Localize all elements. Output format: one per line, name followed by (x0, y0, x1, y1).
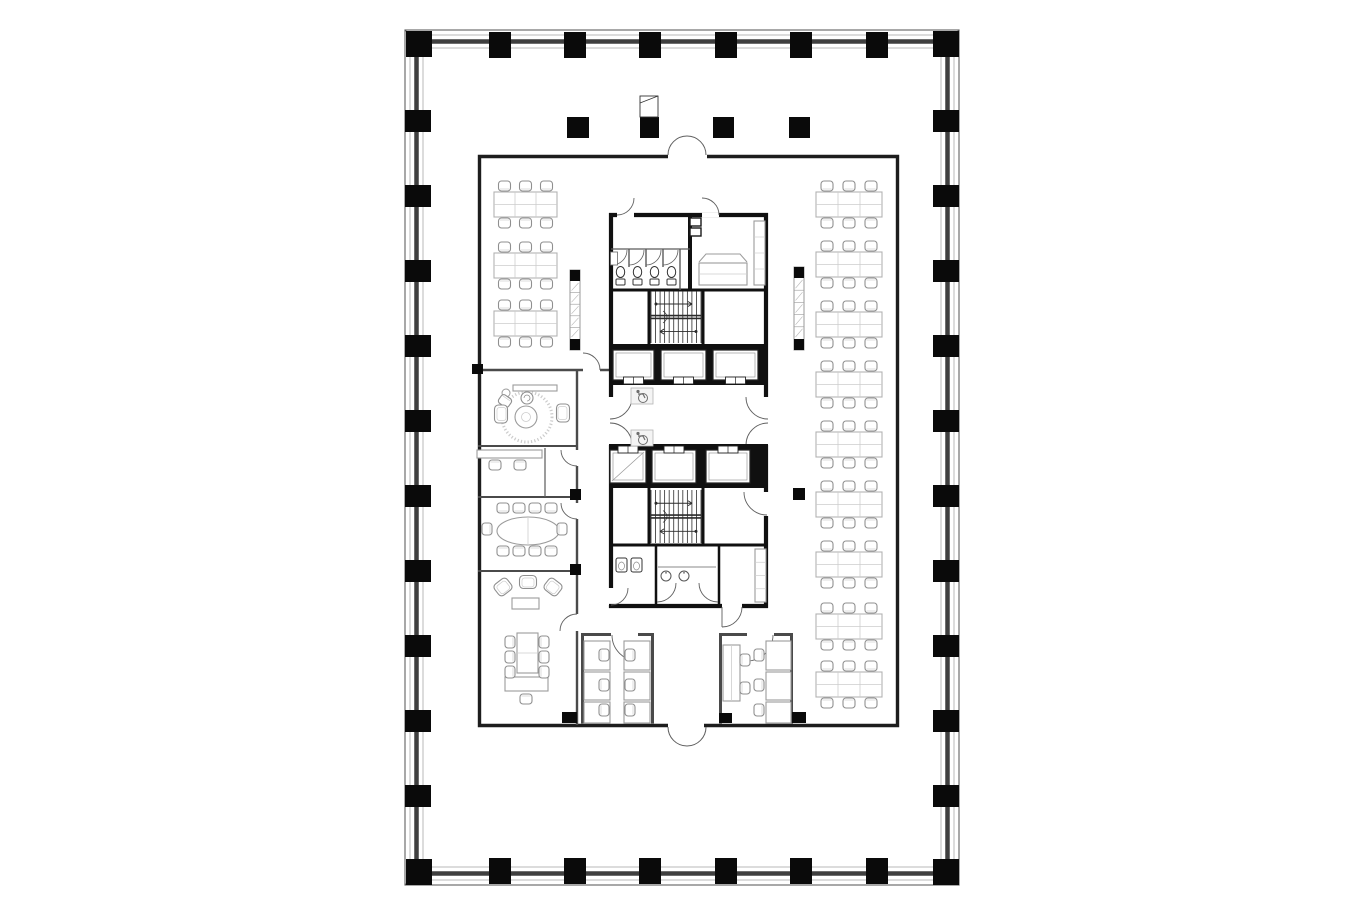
elevator-north-car (613, 350, 654, 384)
chair-seat (865, 661, 877, 671)
chair-seat (865, 338, 877, 348)
chair-seat (821, 698, 833, 708)
elevator-south-car (652, 446, 696, 483)
table (505, 677, 548, 691)
chair (865, 458, 877, 468)
structural-block (719, 713, 732, 723)
shelf-cap (794, 267, 804, 278)
chair (821, 661, 833, 671)
chair (599, 649, 609, 661)
accessible-box (631, 430, 653, 446)
chair-seat (843, 458, 855, 468)
chair-seat (541, 218, 553, 228)
stair-south-east-door (744, 492, 767, 515)
chair-seat (865, 541, 877, 551)
accessible-box (631, 388, 653, 404)
chair (520, 300, 532, 310)
chair-seat (529, 503, 541, 513)
chair (539, 651, 549, 663)
table-top (766, 702, 791, 723)
toilet (616, 267, 625, 286)
toilet (633, 267, 642, 286)
desk-cluster (816, 603, 882, 650)
chair-seat (865, 578, 877, 588)
column (866, 32, 888, 58)
column (405, 260, 431, 282)
chair (520, 181, 532, 191)
chair-seat (865, 278, 877, 288)
chair-seat (625, 704, 635, 716)
desk-cluster (816, 361, 882, 408)
table (513, 385, 557, 391)
column (933, 485, 959, 507)
column (564, 858, 586, 884)
sink (679, 571, 689, 581)
toilet-tank (633, 279, 642, 285)
toilet-tank (616, 279, 625, 285)
table-top (477, 450, 542, 458)
armchair-body (492, 577, 513, 598)
chair-seat (505, 636, 515, 648)
restroom-south-west-door (611, 588, 628, 605)
armchair (557, 404, 570, 422)
chair-seat (865, 398, 877, 408)
chair-seat (489, 460, 501, 470)
electrical-panel (690, 218, 701, 226)
chair-seat (520, 337, 532, 347)
chair-seat (865, 698, 877, 708)
chair-seat (520, 694, 532, 704)
chair (520, 694, 532, 704)
desk-cluster (494, 300, 557, 347)
chair-seat (625, 679, 635, 691)
toilet-stall-doors (612, 250, 678, 265)
column (866, 858, 888, 884)
chair-seat (843, 338, 855, 348)
wheelchair-icon-head (636, 432, 639, 435)
stair-enclosure-walls (649, 290, 703, 545)
chair-seat (505, 666, 515, 678)
column (489, 858, 511, 884)
executive-door (560, 614, 577, 631)
team-room-door (561, 450, 577, 466)
table (766, 641, 791, 670)
chair (821, 361, 833, 371)
structural-block (793, 488, 805, 500)
chair (514, 460, 526, 470)
table (766, 672, 791, 700)
desk-cluster (816, 421, 882, 468)
chair (520, 218, 532, 228)
floor-plan (0, 0, 1360, 900)
electrical-panel (690, 228, 701, 236)
chair-seat (740, 654, 750, 666)
toilet-tank (650, 279, 659, 285)
chair (499, 337, 511, 347)
table-top (766, 672, 791, 700)
table (755, 549, 766, 602)
chair-seat (843, 481, 855, 491)
chair-seat (599, 649, 609, 661)
conference-room (497, 517, 559, 545)
chair-seat (754, 679, 764, 691)
column (405, 710, 431, 732)
chair-seat (843, 218, 855, 228)
chair-seat (865, 301, 877, 311)
core-cross-walls (609, 290, 768, 545)
column (715, 858, 737, 884)
elevator-car (706, 450, 750, 483)
stair-arrow-origin (655, 502, 658, 505)
chair (740, 654, 750, 666)
chair (499, 279, 511, 289)
chair-seat (865, 241, 877, 251)
chair-seat (541, 300, 553, 310)
chair (625, 704, 635, 716)
chair (865, 181, 877, 191)
chair (499, 181, 511, 191)
office-chair (521, 392, 533, 404)
chair (821, 241, 833, 251)
chair (754, 679, 764, 691)
table-top (513, 385, 557, 391)
table (699, 263, 747, 285)
chair-seat (821, 661, 833, 671)
chair-seat (821, 241, 833, 251)
chair (865, 661, 877, 671)
stair-arrow-origin (695, 330, 698, 333)
table (512, 598, 539, 609)
chair (865, 361, 877, 371)
desk-cluster (816, 181, 882, 228)
chair (843, 458, 855, 468)
chair-seat (754, 649, 764, 661)
chair-seat (539, 666, 549, 678)
chair (513, 503, 525, 513)
chair-seat (513, 546, 525, 556)
chair-seat (843, 603, 855, 613)
chair-seat (499, 181, 511, 191)
sink (661, 571, 671, 581)
chair-seat (740, 682, 750, 694)
urinal (631, 558, 642, 572)
chair-seat (529, 546, 541, 556)
chair (865, 518, 877, 528)
chair (499, 300, 511, 310)
elevator-car (613, 350, 654, 380)
elevator-car (652, 450, 696, 483)
chair (505, 666, 515, 678)
chair-seat (625, 649, 635, 661)
chair (529, 503, 541, 513)
chair (754, 649, 764, 661)
chair (843, 421, 855, 431)
chair-seat (821, 578, 833, 588)
elevator-car (713, 350, 758, 380)
table-top (505, 677, 548, 691)
column (790, 32, 812, 58)
chair (865, 603, 877, 613)
chair-seat (520, 242, 532, 252)
chair-seat (821, 218, 833, 228)
chair-seat (843, 361, 855, 371)
chair (821, 541, 833, 551)
chair-seat (821, 361, 833, 371)
chair (541, 279, 553, 289)
column (933, 110, 959, 132)
shelf-cap (570, 270, 580, 281)
chair (599, 704, 609, 716)
toilet-tank (667, 279, 676, 285)
chair (865, 218, 877, 228)
chair (865, 278, 877, 288)
stairs (651, 291, 701, 543)
chair-seat (821, 398, 833, 408)
chair (821, 301, 833, 311)
chair-seat (499, 300, 511, 310)
chair (843, 361, 855, 371)
table (723, 645, 740, 701)
interior-column (789, 117, 810, 138)
chair (557, 523, 567, 535)
chair-seat (843, 518, 855, 528)
shelf-cap (794, 339, 804, 350)
chair-seat (865, 481, 877, 491)
chair-seat (843, 421, 855, 431)
chair (625, 679, 635, 691)
stair-arrow-origin (695, 530, 698, 533)
chair-seat (843, 541, 855, 551)
chair-seat (843, 181, 855, 191)
column (489, 32, 511, 58)
chair-seat (865, 640, 877, 650)
column (405, 410, 431, 432)
column (405, 785, 431, 807)
north-entrance-double-door (668, 136, 706, 155)
chair-seat (482, 523, 492, 535)
chair (843, 578, 855, 588)
chair (843, 541, 855, 551)
stair-flight (651, 490, 701, 543)
chair-seat (513, 503, 525, 513)
chair-seat (821, 458, 833, 468)
chair-seat (499, 337, 511, 347)
chair-seat (865, 458, 877, 468)
chair (539, 666, 549, 678)
chair-seat (843, 398, 855, 408)
chair-seat (520, 181, 532, 191)
chair-seat (821, 338, 833, 348)
column (715, 32, 737, 58)
column (405, 635, 431, 657)
stair-flight (651, 291, 701, 343)
chair (865, 640, 877, 650)
chair (497, 503, 509, 513)
wc-stall-doors-south (657, 583, 718, 602)
column (639, 858, 661, 884)
chair (865, 481, 877, 491)
chair-seat (821, 421, 833, 431)
chair (865, 338, 877, 348)
toilet-bowl (633, 267, 641, 278)
column (933, 635, 959, 657)
chair (865, 541, 877, 551)
chair-seat (821, 278, 833, 288)
chair (843, 603, 855, 613)
desk-cluster (494, 181, 557, 228)
chair-seat (843, 278, 855, 288)
chair-seat (499, 218, 511, 228)
shelf-cap (570, 339, 580, 350)
stair-arrow-origin (655, 303, 658, 306)
chair-seat (499, 242, 511, 252)
table (766, 702, 791, 723)
chair-seat (541, 337, 553, 347)
toilet-bowl (650, 267, 658, 278)
column (405, 485, 431, 507)
round-table (515, 406, 537, 428)
chair-seat (865, 421, 877, 431)
chair-seat (539, 636, 549, 648)
chair (865, 421, 877, 431)
desk-cluster (816, 661, 882, 708)
accessible-markers (631, 388, 653, 446)
wheelchair-icon-head (636, 390, 639, 393)
column (933, 335, 959, 357)
chair-seat (497, 546, 509, 556)
sofa-back (699, 254, 747, 262)
column (639, 32, 661, 58)
chair (821, 603, 833, 613)
chair (545, 503, 557, 513)
urinal (616, 558, 627, 572)
table (477, 450, 542, 458)
chair-seat (520, 218, 532, 228)
chair (843, 338, 855, 348)
column (933, 710, 959, 732)
corner-column (406, 859, 432, 885)
structural-block (792, 712, 806, 723)
lounge (502, 389, 552, 442)
desk-cluster (816, 541, 882, 588)
structural-block (472, 364, 483, 374)
floor-plan-page (0, 0, 1360, 900)
chair-seat (545, 503, 557, 513)
elevator-car (661, 350, 706, 380)
chair (843, 398, 855, 408)
chair-seat (843, 661, 855, 671)
elevator-south-car (610, 446, 646, 483)
chair (865, 578, 877, 588)
shelving-strip (570, 270, 580, 350)
chair (865, 398, 877, 408)
column (790, 858, 812, 884)
cleaning-closet (611, 252, 618, 265)
interior-columns (567, 96, 810, 138)
chair (821, 458, 833, 468)
chair (821, 698, 833, 708)
armchair-body (542, 577, 563, 598)
chair (843, 640, 855, 650)
column (933, 260, 959, 282)
amenity-room-door (702, 198, 719, 215)
shelving-strip (794, 267, 804, 350)
conference-door (561, 503, 577, 519)
chair (821, 421, 833, 431)
chair (541, 218, 553, 228)
desk-cluster (816, 481, 882, 528)
chair (529, 546, 541, 556)
column (933, 785, 959, 807)
interior-column (567, 117, 589, 138)
armchair (542, 577, 563, 598)
column (405, 560, 431, 582)
corner-column (933, 859, 959, 885)
chair-seat (865, 361, 877, 371)
chair-seat (821, 518, 833, 528)
chair (513, 546, 525, 556)
chair-seat (865, 218, 877, 228)
chair-seat (821, 301, 833, 311)
armchair (492, 577, 513, 598)
janitor-room-door (722, 607, 742, 627)
chair-seat (539, 651, 549, 663)
corner-column (406, 31, 432, 57)
chair (599, 679, 609, 691)
column (405, 335, 431, 357)
desk-cluster (816, 241, 882, 288)
lobby-east-doors (746, 397, 768, 445)
toilet (667, 267, 676, 286)
chair-seat (520, 279, 532, 289)
column (933, 410, 959, 432)
chair (843, 278, 855, 288)
chair (843, 518, 855, 528)
elevator-south-car (706, 446, 750, 483)
chair-seat (843, 241, 855, 251)
chair (740, 682, 750, 694)
desk-cluster (494, 242, 557, 289)
accessible-marker (631, 430, 653, 446)
column (933, 185, 959, 207)
chair-seat (520, 300, 532, 310)
chair (821, 640, 833, 650)
chair (497, 546, 509, 556)
chair-seat (541, 242, 553, 252)
chair-seat (545, 546, 557, 556)
chair (482, 523, 492, 535)
chair (505, 651, 515, 663)
chair-seat (843, 578, 855, 588)
chair (865, 241, 877, 251)
sink-faucet (683, 572, 685, 574)
table-top (512, 598, 539, 609)
chair-seat (557, 523, 567, 535)
chair-seat (843, 698, 855, 708)
chair-seat (541, 181, 553, 191)
chair-seat (821, 481, 833, 491)
table (517, 633, 538, 673)
chair-seat (514, 460, 526, 470)
chair (754, 704, 764, 716)
desk-cluster (816, 301, 882, 348)
chair (821, 398, 833, 408)
chair (843, 661, 855, 671)
chair (821, 518, 833, 528)
chair-seat (599, 704, 609, 716)
chair (843, 698, 855, 708)
chair (865, 698, 877, 708)
